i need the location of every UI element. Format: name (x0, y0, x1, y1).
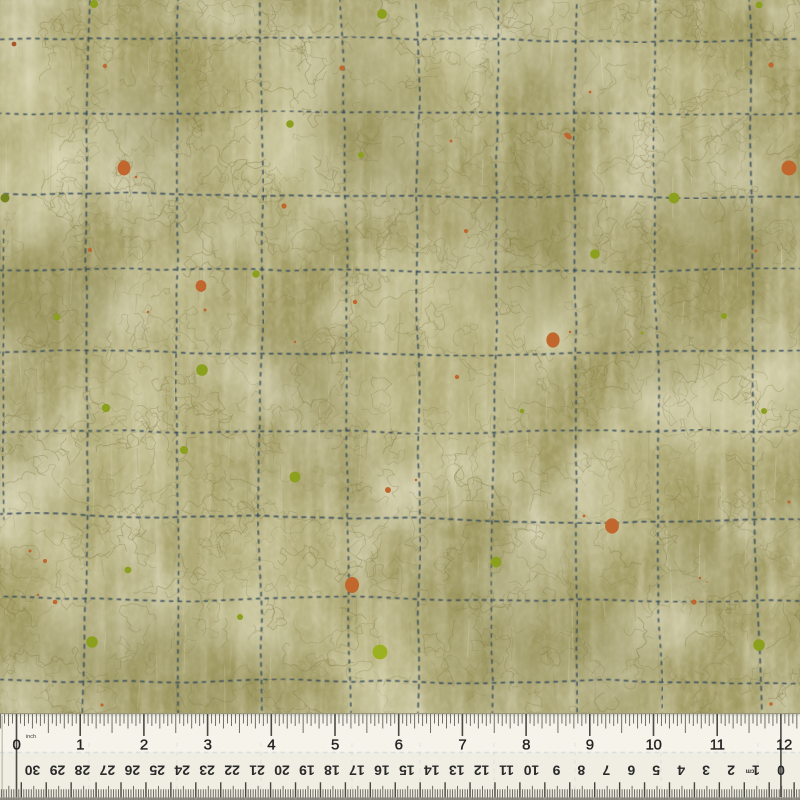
svg-text:7: 7 (458, 737, 466, 754)
svg-text:17: 17 (349, 763, 365, 779)
svg-text:12: 12 (474, 763, 490, 779)
svg-text:15: 15 (399, 763, 415, 779)
svg-text:8: 8 (577, 763, 585, 779)
svg-text:3: 3 (702, 763, 710, 779)
svg-text:6: 6 (395, 737, 403, 754)
svg-text:29: 29 (50, 763, 66, 779)
svg-text:9: 9 (586, 737, 594, 754)
svg-text:11: 11 (710, 737, 725, 754)
svg-text:10: 10 (645, 737, 661, 754)
svg-text:11: 11 (499, 763, 514, 779)
svg-text:24: 24 (174, 763, 190, 779)
svg-text:9: 9 (552, 763, 560, 779)
svg-text:1: 1 (76, 737, 84, 754)
svg-text:30: 30 (25, 763, 41, 779)
svg-text:0: 0 (777, 763, 785, 779)
svg-text:8: 8 (522, 737, 530, 754)
svg-text:19: 19 (299, 763, 315, 779)
svg-text:21: 21 (249, 763, 265, 779)
svg-text:6: 6 (627, 763, 635, 779)
svg-text:4: 4 (267, 737, 275, 754)
svg-text:4: 4 (677, 763, 685, 779)
svg-text:13: 13 (449, 763, 465, 779)
svg-text:inch: inch (26, 734, 36, 740)
svg-text:10: 10 (524, 763, 540, 779)
svg-text:16: 16 (374, 763, 390, 779)
svg-text:28: 28 (74, 763, 90, 779)
svg-text:14: 14 (424, 763, 440, 779)
svg-text:12: 12 (776, 737, 792, 754)
svg-text:5: 5 (652, 763, 660, 779)
svg-text:18: 18 (324, 763, 340, 779)
svg-text:25: 25 (149, 763, 165, 779)
svg-text:22: 22 (224, 763, 240, 779)
svg-text:23: 23 (199, 763, 215, 779)
svg-text:20: 20 (274, 763, 290, 779)
svg-text:cm: cm (746, 768, 755, 774)
svg-text:27: 27 (99, 763, 115, 779)
svg-text:5: 5 (331, 737, 339, 754)
svg-text:2: 2 (727, 763, 735, 779)
svg-text:0: 0 (12, 737, 20, 754)
svg-text:7: 7 (602, 763, 610, 779)
svg-text:3: 3 (204, 737, 212, 754)
svg-text:2: 2 (140, 737, 148, 754)
svg-text:26: 26 (124, 763, 140, 779)
